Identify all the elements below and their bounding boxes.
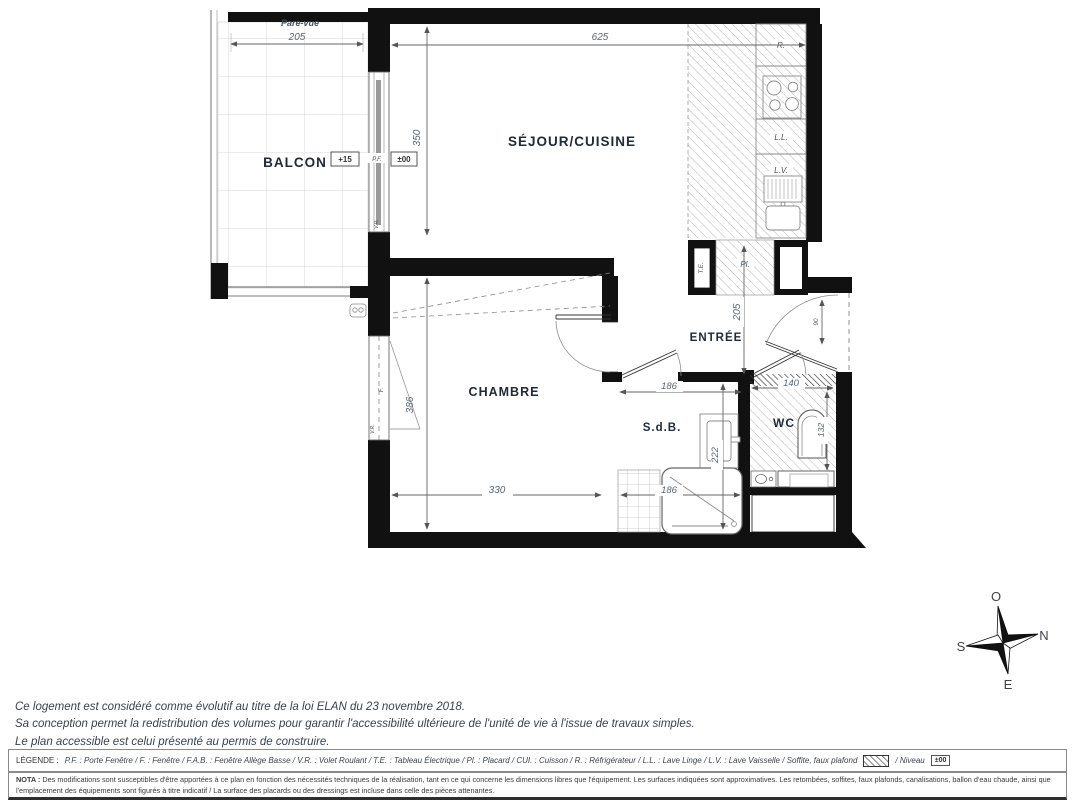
- floor-plan-drawing: R. L.L. L.V. SÉJOUR/CUISINE V.R. F. V.R.…: [0, 0, 1075, 698]
- dim-chambre-width: 330: [489, 485, 506, 496]
- note-line-1: Ce logement est considéré comme évolutif…: [15, 699, 695, 716]
- level-badge-balcony: +15: [331, 152, 359, 166]
- electrical-board-label: T.E.: [698, 262, 705, 274]
- sejour-kitchen: R. L.L. L.V. SÉJOUR/CUISINE: [508, 24, 806, 238]
- legend-items: P.F. : Porte Fenêtre / F. : Fenêtre / F.…: [65, 756, 858, 765]
- dim-sdb-width: 186: [661, 381, 678, 392]
- technical-shaft: [752, 495, 834, 532]
- radiator: [350, 304, 366, 317]
- hand-basin: [751, 471, 776, 487]
- chambre-label: CHAMBRE: [469, 385, 540, 399]
- entry-storage-row: T.E. Pl.: [694, 240, 802, 295]
- compass-north: N: [1039, 628, 1048, 643]
- legend-bar: LÉGENDE : P.F. : Porte Fenêtre / F. : Fe…: [8, 749, 1067, 772]
- sejour-label: SÉJOUR/CUISINE: [508, 134, 636, 149]
- dishwasher-label: L.V.: [774, 166, 788, 175]
- dim-sejour-height: 350: [412, 129, 423, 146]
- nota-text: Des modifications sont susceptibles d'êt…: [16, 775, 1051, 795]
- soffite-hatch-swatch: [863, 755, 889, 767]
- window-pf: V.R.: [369, 72, 389, 232]
- shower-tiles: [618, 470, 660, 532]
- note-line-2: Sa conception permet la redistribution d…: [15, 716, 695, 733]
- f-shutter-label: V.R.: [370, 424, 376, 433]
- svg-text:+15: +15: [338, 155, 352, 164]
- compass-west: O: [991, 589, 1001, 604]
- dim-sdb-height: 222: [710, 446, 721, 464]
- entree-label: ENTRÉE: [690, 331, 743, 344]
- entree: ENTRÉE: [690, 293, 849, 372]
- level-badge-sejour: ±00: [391, 152, 417, 166]
- duct: [780, 247, 802, 289]
- dim-entree-height: 205: [732, 303, 743, 321]
- compass-south: S: [957, 639, 966, 654]
- dim-balcony-width: 205: [288, 32, 306, 43]
- pf-shutter-label: V.R.: [374, 219, 380, 229]
- f-window-label: F.: [379, 388, 385, 393]
- balcon-label: BALCON: [263, 155, 327, 170]
- legend-niveau-label: / Niveau: [895, 756, 924, 765]
- sdb-door: [622, 350, 681, 378]
- dim-wc-height: 132: [816, 423, 826, 437]
- chambre-door: [556, 315, 618, 372]
- wc-shelf: [778, 471, 834, 487]
- wc-door: [753, 350, 806, 377]
- svg-text:±00: ±00: [397, 155, 411, 164]
- washer-label: L.L.: [774, 133, 787, 142]
- legend-niveau-value: ±00: [931, 755, 951, 766]
- compass-east: E: [1004, 677, 1013, 692]
- pf-door-label: P.F.: [372, 157, 381, 163]
- nota-title: NOTA :: [16, 775, 40, 784]
- dim-door-width: 90: [813, 318, 820, 326]
- dim-bathtub-width: 186: [661, 485, 678, 496]
- legend-title: LÉGENDE :: [16, 756, 59, 765]
- window-f: F. V.R.: [369, 336, 420, 440]
- sdb-label: S.d.B.: [643, 422, 682, 434]
- elan-notes: Ce logement est considéré comme évolutif…: [15, 699, 695, 751]
- floor-plan-page: R. L.L. L.V. SÉJOUR/CUISINE V.R. F. V.R.…: [0, 0, 1075, 800]
- nota-bar: NOTA : Des modifications sont susceptibl…: [8, 772, 1067, 800]
- bathtub: [662, 468, 742, 534]
- dim-chambre-height: 386: [405, 396, 416, 413]
- pare-vue-label: Pare-vue: [281, 18, 319, 28]
- fridge-label: R.: [777, 41, 785, 50]
- wc-label: WC: [773, 416, 795, 430]
- dim-sejour-width: 625: [592, 32, 609, 43]
- closet-label: Pl.: [740, 260, 749, 269]
- dim-wc-width: 140: [783, 378, 800, 389]
- entrance-door: [765, 293, 849, 372]
- compass-rose: O N S E: [957, 589, 1049, 692]
